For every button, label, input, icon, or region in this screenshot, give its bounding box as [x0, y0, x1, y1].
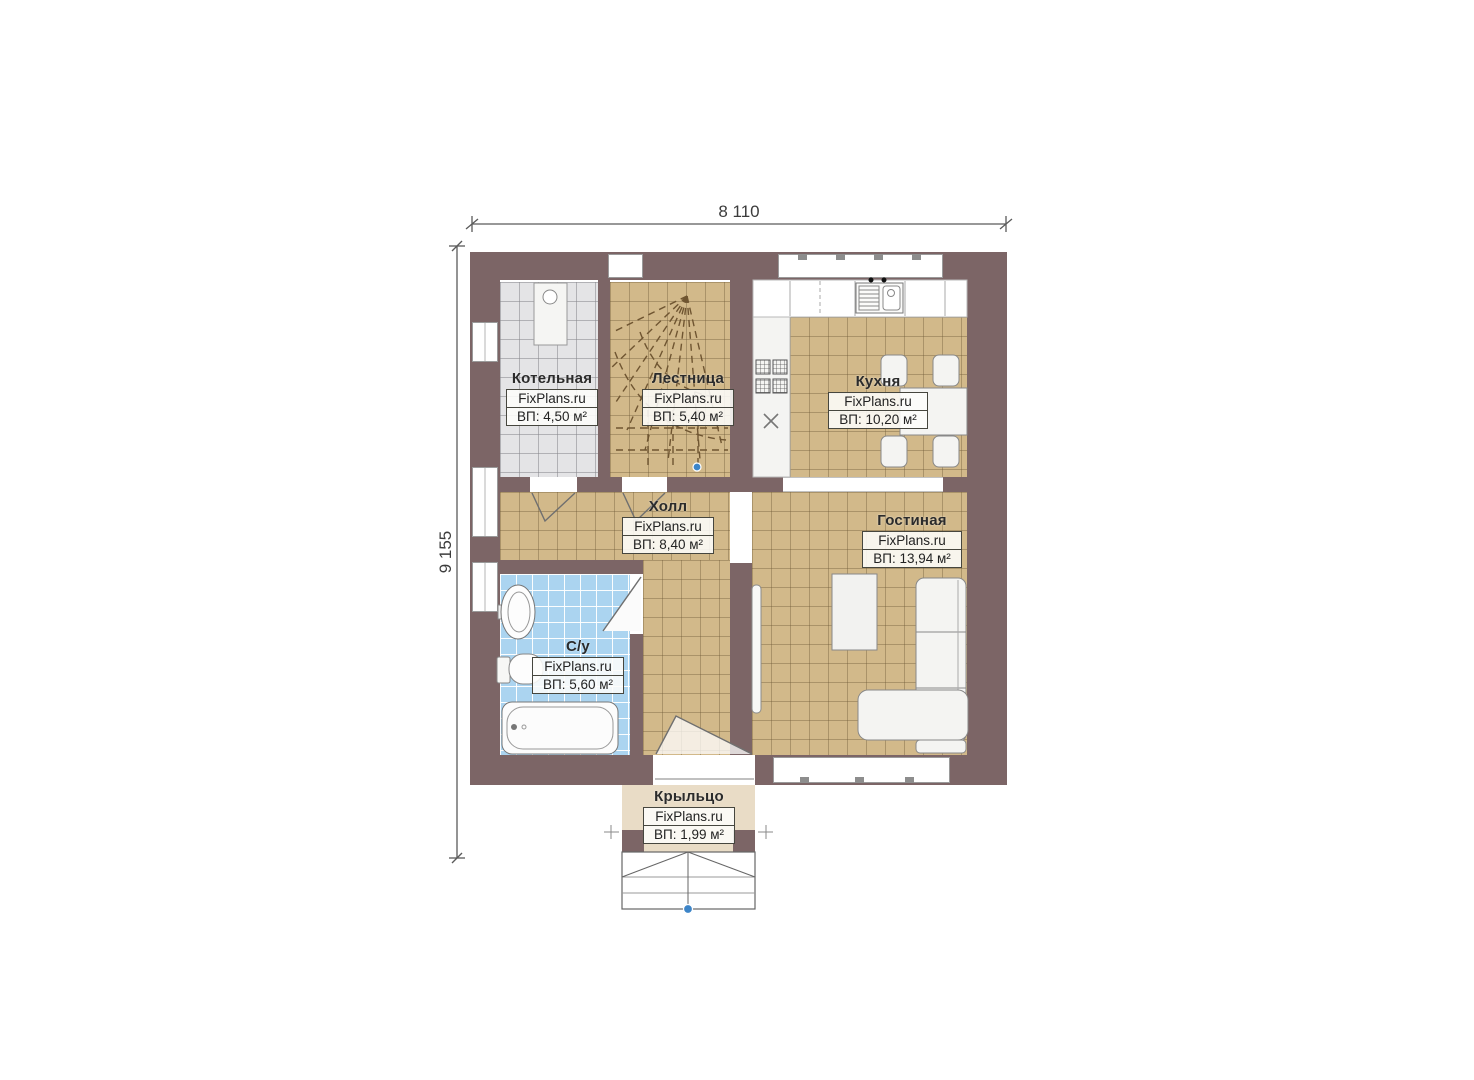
- window-hall-left: [472, 467, 498, 537]
- room-label-bath: С/у FixPlans.ru ВП: 5,60 м²: [498, 638, 658, 694]
- door-opening-boiler: [530, 477, 577, 492]
- wall-mid-seg-b: [577, 477, 622, 492]
- passage-kitchen-living: [783, 477, 943, 492]
- door-opening-entrance: [653, 755, 755, 785]
- wall-mid-seg-c: [667, 477, 753, 492]
- watermark-text: FixPlans.ru: [643, 390, 733, 407]
- room-name: Кухня: [798, 373, 958, 390]
- room-name: С/у: [498, 638, 658, 655]
- watermark-text: FixPlans.ru: [533, 658, 623, 675]
- room-area: ВП: 5,40 м²: [643, 407, 733, 425]
- room-name: Холл: [588, 498, 748, 515]
- room-info-box: FixPlans.ru ВП: 10,20 м²: [828, 392, 928, 429]
- room-info-box: FixPlans.ru ВП: 5,60 м²: [532, 657, 624, 694]
- floor-plan-page: 8 110 9 155 Котельная FixPlans.ru ВП: 4,…: [0, 0, 1474, 1080]
- door-opening-stairs: [622, 477, 667, 492]
- watermark-text: FixPlans.ru: [644, 808, 734, 825]
- room-area: ВП: 8,40 м²: [623, 535, 713, 553]
- watermark-text: FixPlans.ru: [507, 390, 597, 407]
- watermark-text: FixPlans.ru: [623, 518, 713, 535]
- window-staircase-top: [608, 254, 643, 278]
- kitchen-sink: [856, 278, 903, 314]
- dimension-height-label: 9 155: [436, 502, 456, 602]
- window-bath-left: [472, 562, 498, 612]
- wall-hall-bath-top: [500, 560, 643, 574]
- wall-mid-seg-d: [753, 477, 783, 492]
- wall-mid-seg-e: [943, 477, 967, 492]
- room-label-living: Гостиная FixPlans.ru ВП: 13,94 м²: [832, 512, 992, 568]
- room-info-box: FixPlans.ru ВП: 5,40 м²: [642, 389, 734, 426]
- room-info-box: FixPlans.ru ВП: 1,99 м²: [643, 807, 735, 844]
- room-info-box: FixPlans.ru ВП: 13,94 м²: [862, 531, 962, 568]
- window-kitchen-top: [778, 254, 943, 278]
- wall-mid-seg-a: [500, 477, 530, 492]
- door-opening-bathroom: [630, 574, 643, 634]
- window-living-bottom: [773, 757, 950, 783]
- porch-steps: [622, 852, 755, 909]
- room-info-box: FixPlans.ru ВП: 4,50 м²: [506, 389, 598, 426]
- window-boiler-left: [472, 322, 498, 362]
- room-label-porch: Крыльцо FixPlans.ru ВП: 1,99 м²: [609, 788, 769, 844]
- dimension-width-label: 8 110: [689, 202, 789, 222]
- reference-marker-porch: [684, 905, 693, 914]
- watermark-text: FixPlans.ru: [863, 532, 961, 549]
- room-label-hall: Холл FixPlans.ru ВП: 8,40 м²: [588, 498, 748, 554]
- room-info-box: FixPlans.ru ВП: 8,40 м²: [622, 517, 714, 554]
- room-area: ВП: 13,94 м²: [863, 549, 961, 567]
- wall-hall-living: [730, 563, 752, 755]
- room-area: ВП: 4,50 м²: [507, 407, 597, 425]
- room-area: ВП: 10,20 м²: [829, 410, 927, 428]
- room-name: Гостиная: [832, 512, 992, 529]
- room-label-kitchen: Кухня FixPlans.ru ВП: 10,20 м²: [798, 373, 958, 429]
- room-area: ВП: 5,60 м²: [533, 675, 623, 693]
- room-area: ВП: 1,99 м²: [644, 825, 734, 843]
- watermark-text: FixPlans.ru: [829, 393, 927, 410]
- room-name: Лестница: [608, 370, 768, 387]
- room-name: Крыльцо: [609, 788, 769, 805]
- room-label-stairs: Лестница FixPlans.ru ВП: 5,40 м²: [608, 370, 768, 426]
